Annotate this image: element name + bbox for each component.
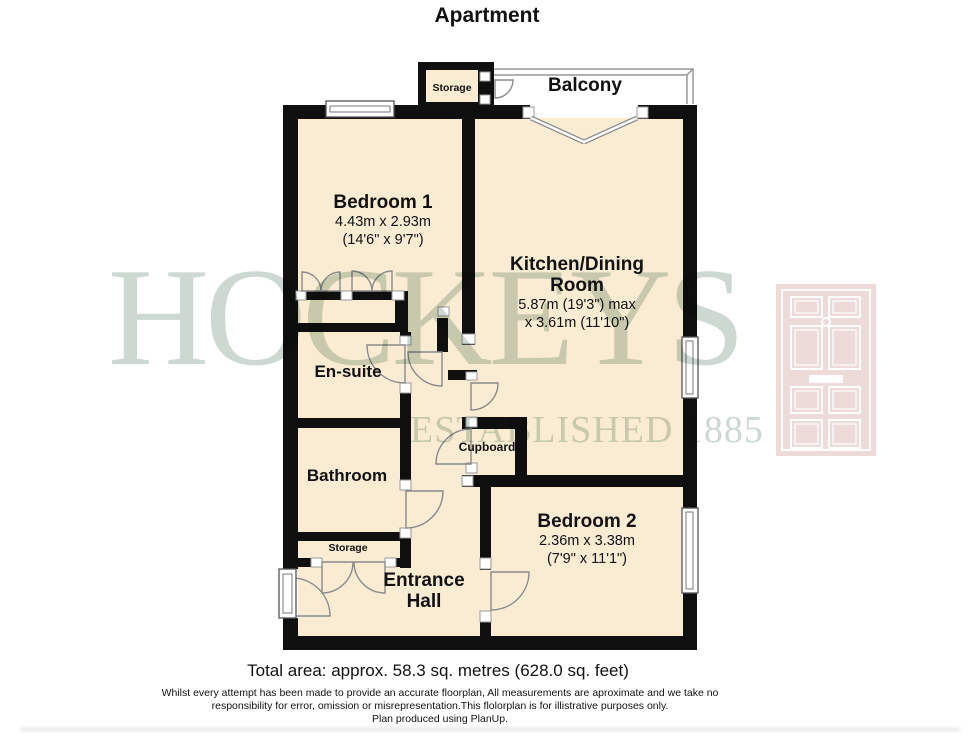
top-wall-mid <box>475 105 530 119</box>
bedroom1-kitchen-divider <box>462 119 475 345</box>
storage-top-floor <box>426 70 478 102</box>
kitchen-window <box>682 337 698 398</box>
storage-balcony-door <box>495 80 513 98</box>
bedroom1-window <box>326 101 394 117</box>
vestibule-stub-wall <box>437 318 448 352</box>
cupboard-right-wall <box>515 417 527 475</box>
balcony-outline <box>494 69 693 104</box>
left-wall-upper <box>283 105 298 569</box>
bedroom2-window <box>682 508 698 593</box>
kitchen-bedroom2-divider <box>462 475 697 487</box>
floorplan-page: Apartment Storage Balcony Bedroom 1 4.43… <box>0 0 980 735</box>
bathroom-storage-divider <box>298 532 400 541</box>
ensuite-bathroom-divider <box>298 418 411 428</box>
hall-wall-seg2 <box>400 383 411 490</box>
ensuite-top-wall <box>298 323 408 332</box>
floorplan-drawing <box>0 0 980 735</box>
entrance-door <box>279 569 296 618</box>
bottom-wall <box>283 636 697 650</box>
